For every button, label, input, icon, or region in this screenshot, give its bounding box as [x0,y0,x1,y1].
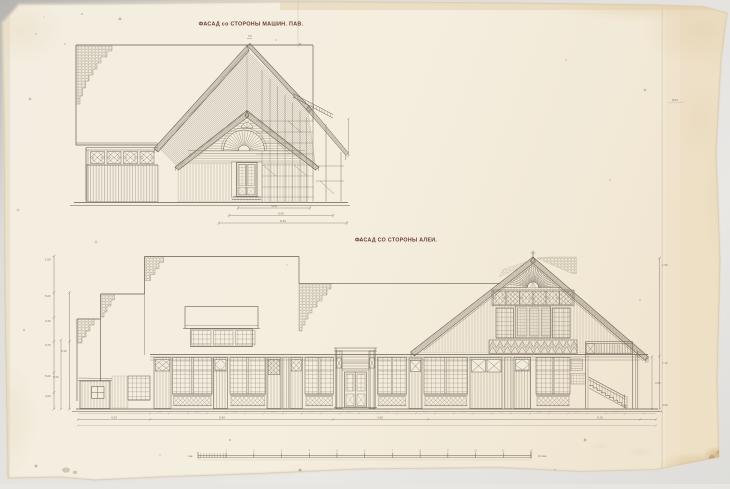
svg-text:6,40: 6,40 [278,211,284,215]
svg-text:мал.: мал. [672,98,679,102]
svg-text:5,40: 5,40 [219,415,225,419]
svg-text:7,10: 7,10 [662,361,668,365]
svg-text:8,40: 8,40 [280,219,286,223]
svg-text:0,70: 0,70 [45,343,51,347]
svg-text:ФАСАД СО СТОРОНЫ АЛЕИ.: ФАСАД СО СТОРОНЫ АЛЕИ. [355,238,438,244]
svg-text:4,00: 4,00 [662,403,668,407]
svg-text:5,60: 5,60 [53,375,59,379]
svg-text:4,00: 4,00 [271,204,277,208]
svg-text:4,10: 4,10 [111,415,117,419]
svg-text:3,40: 3,40 [45,319,51,323]
svg-text:4,50: 4,50 [655,381,661,385]
svg-text:5,00: 5,00 [45,374,51,378]
svg-text:8,40: 8,40 [61,349,67,353]
svg-text:ФАСАД со СТОРОНЫ МАШИН. ПАВ.: ФАСАД со СТОРОНЫ МАШИН. ПАВ. [199,22,304,28]
svg-text:4½: 4½ [248,34,253,38]
svg-text:5,00: 5,00 [45,294,51,298]
svg-text:4,00: 4,00 [45,394,51,398]
svg-text:3,60: 3,60 [377,415,383,419]
svg-text:8,10: 8,10 [597,415,603,419]
svg-text:1,50: 1,50 [45,258,51,262]
svg-text:саж.: саж. [188,455,193,458]
svg-text:1,50: 1,50 [662,263,668,267]
svg-text:10 саж.: 10 саж. [538,454,547,458]
